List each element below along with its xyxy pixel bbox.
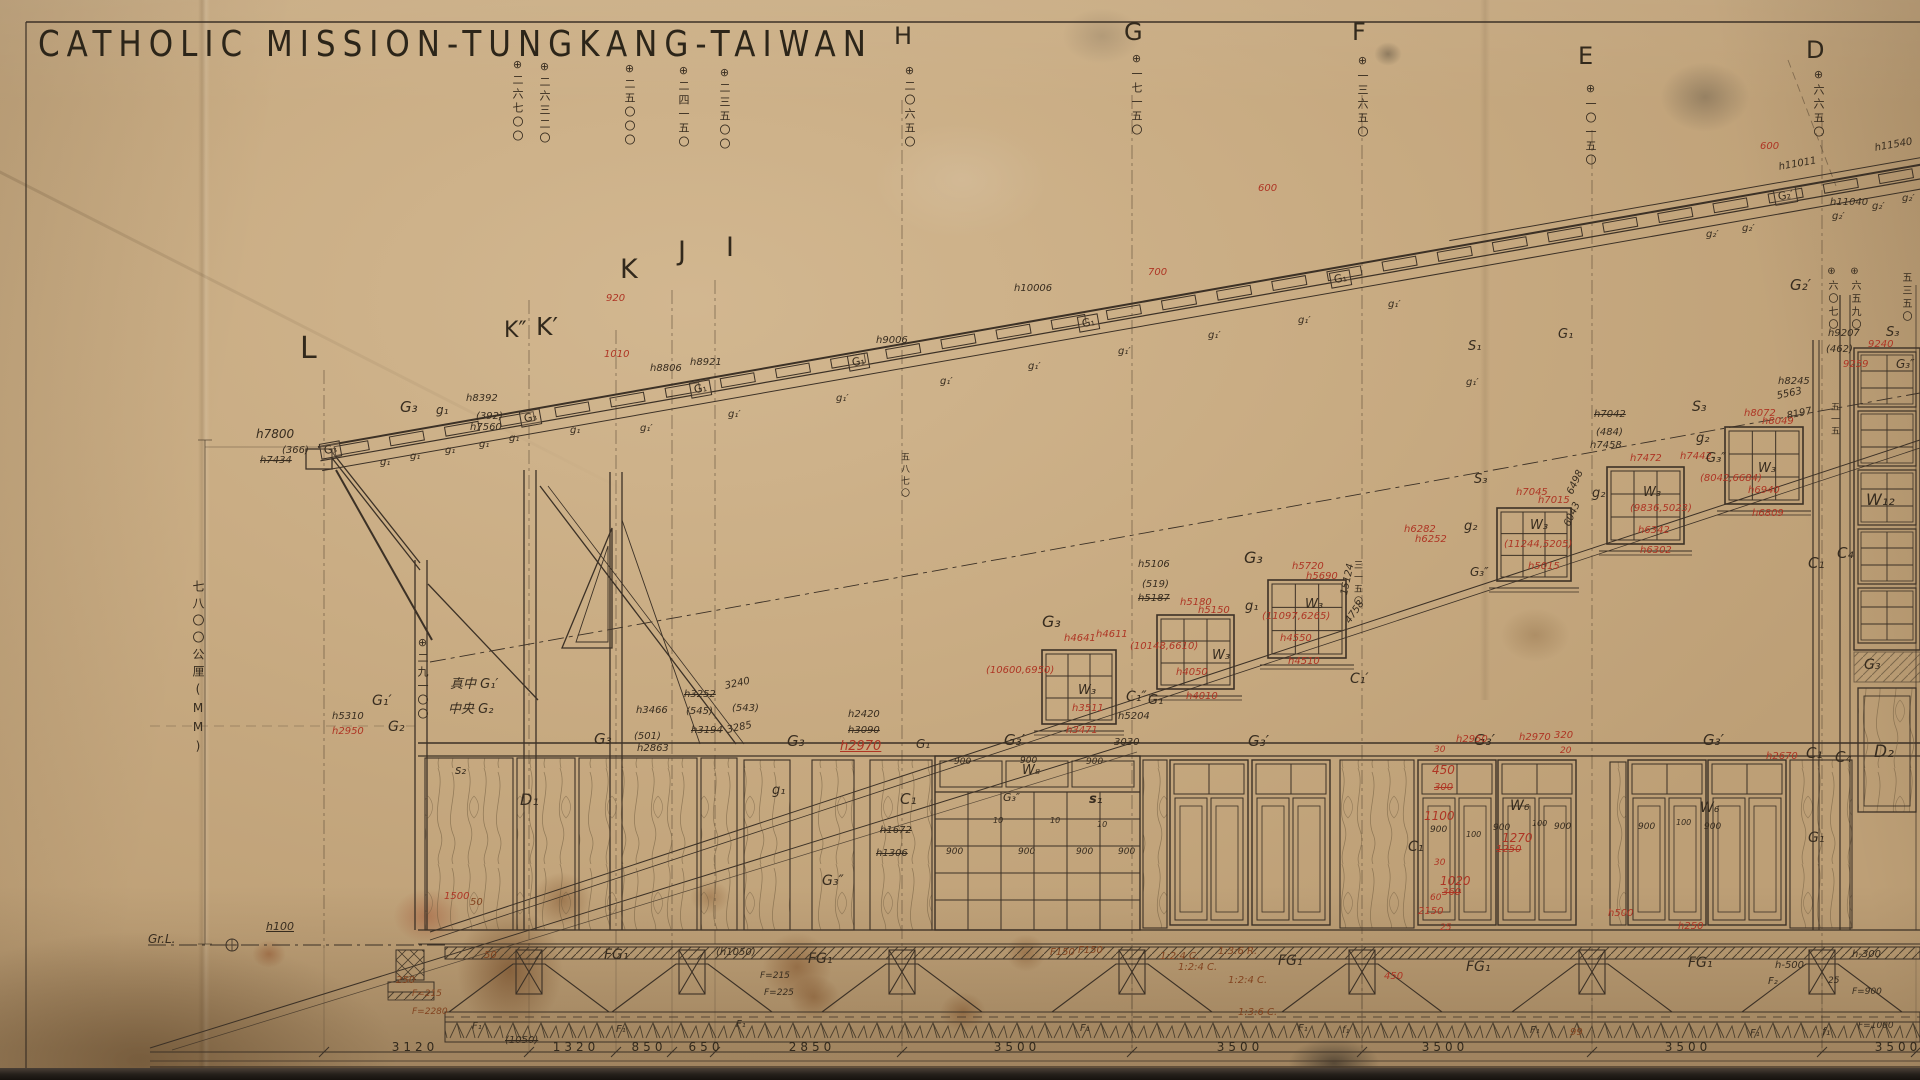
dimension-label: 3500 xyxy=(1217,1040,1264,1054)
blueprint-sheet: CATHOLIC MISSION-TUNGKANG-TAIWAN LK″K′KJ… xyxy=(0,0,1920,1080)
dimension-label: 3500 xyxy=(1422,1040,1469,1054)
dimension-label: 2850 xyxy=(789,1040,836,1054)
dimension-label: 3500 xyxy=(994,1040,1041,1054)
dimension-label: 3500 xyxy=(1665,1040,1712,1054)
dimension-label: 1320 xyxy=(553,1040,600,1054)
dimension-label: 3120 xyxy=(392,1040,439,1054)
scan-edge xyxy=(0,1068,1920,1080)
dimension-label: 3500 xyxy=(1875,1040,1920,1054)
dimension-label: 650 xyxy=(689,1040,724,1054)
dimension-row-layer: 31201320850650285035003500350035003500 xyxy=(0,0,1920,1080)
dimension-label: 850 xyxy=(632,1040,667,1054)
